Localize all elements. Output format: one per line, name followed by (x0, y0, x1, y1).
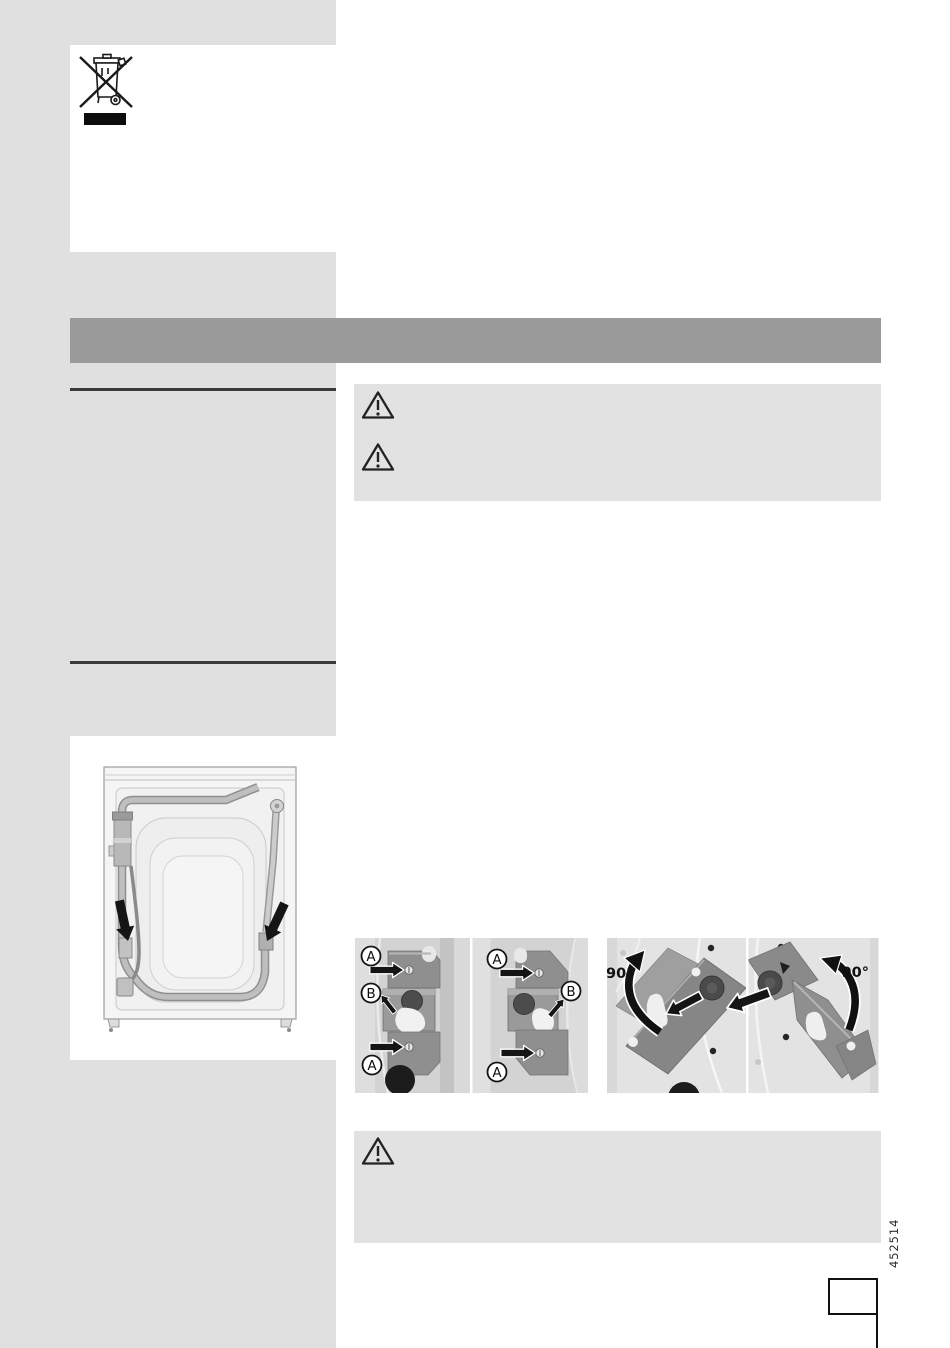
panel-4-remove-bracket: 90° (748, 938, 879, 1093)
label-a: A (492, 952, 502, 968)
warning-note-box-1 (354, 384, 881, 501)
page-corner-line (876, 1315, 878, 1348)
angle-label: 90° (842, 965, 869, 981)
label-a: A (367, 1058, 377, 1074)
panel-2-bracket-mirrored: A B A (473, 938, 589, 1093)
label-a: A (492, 1065, 502, 1081)
machine-feet (108, 1019, 292, 1032)
label-b: B (366, 986, 375, 1002)
warning-note-box-2 (354, 1131, 881, 1243)
hose-clip (117, 978, 133, 996)
warning-triangle-icon (361, 442, 395, 472)
label-a: A (366, 949, 376, 965)
weee-symbol-box (70, 45, 336, 252)
weee-crossed-out-wheeled-bin-icon (78, 50, 134, 128)
transit-bracket-removal-illustrations: A B A (354, 938, 881, 1093)
washing-machine-rear-view-illustration (70, 736, 336, 1060)
page-corner-box (828, 1278, 878, 1315)
manual-page: A B A (0, 0, 950, 1348)
section-title-banner (70, 318, 881, 363)
figure-box (70, 736, 336, 1060)
warning-triangle-icon (361, 1136, 395, 1166)
panel-1-bracket-in-place: A B A (355, 938, 470, 1093)
column-divider-rule-bottom (70, 661, 336, 664)
weee-black-bar (84, 113, 126, 125)
column-divider-rule-top (70, 388, 336, 391)
label-b: B (566, 984, 575, 1000)
angle-label: 90° (606, 966, 633, 982)
warning-triangle-icon (361, 390, 395, 420)
document-code-vertical: 452514 (887, 1218, 903, 1268)
